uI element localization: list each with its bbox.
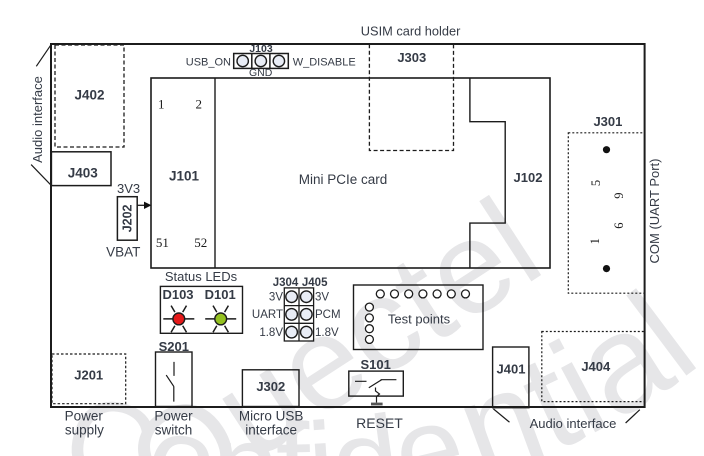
svg-text:J402: J402: [74, 88, 104, 103]
svg-text:3V: 3V: [269, 292, 283, 304]
svg-text:52: 52: [194, 235, 207, 250]
svg-text:COM (UART Port): COM (UART Port): [647, 159, 662, 264]
svg-text:Mini PCIe card: Mini PCIe card: [299, 172, 388, 187]
svg-text:D103: D103: [162, 287, 193, 302]
svg-text:J103: J103: [249, 43, 273, 55]
svg-text:RESET: RESET: [356, 415, 403, 431]
svg-text:interface: interface: [245, 423, 297, 438]
svg-text:J304: J304: [273, 277, 299, 289]
svg-text:J201: J201: [74, 368, 103, 383]
svg-text:2: 2: [195, 97, 202, 112]
svg-text:S101: S101: [361, 357, 391, 372]
svg-text:J102: J102: [514, 170, 543, 185]
svg-text:GND: GND: [249, 67, 273, 79]
svg-text:5: 5: [589, 180, 603, 186]
svg-text:USB_ON: USB_ON: [186, 57, 231, 69]
svg-text:VBAT: VBAT: [106, 245, 140, 260]
svg-text:1.8V: 1.8V: [315, 327, 339, 339]
svg-text:J404: J404: [581, 359, 611, 374]
svg-text:USIM card holder: USIM card holder: [361, 24, 461, 39]
svg-text:S201: S201: [159, 339, 189, 354]
svg-text:Power: Power: [65, 409, 104, 424]
svg-text:switch: switch: [155, 423, 193, 438]
svg-text:Micro USB: Micro USB: [239, 409, 304, 424]
svg-text:J301: J301: [593, 114, 622, 129]
svg-text:J101: J101: [169, 169, 200, 184]
svg-text:1: 1: [588, 238, 602, 244]
svg-text:1.8V: 1.8V: [259, 327, 283, 339]
svg-text:UART: UART: [252, 309, 283, 321]
svg-text:W_DISABLE: W_DISABLE: [293, 57, 356, 69]
svg-text:J303: J303: [397, 50, 426, 65]
svg-text:9: 9: [612, 192, 626, 198]
svg-text:Power: Power: [154, 409, 193, 424]
svg-text:Audio interface: Audio interface: [530, 416, 617, 431]
svg-text:D101: D101: [205, 287, 236, 302]
svg-text:3V: 3V: [315, 292, 329, 304]
svg-text:Status LEDs: Status LEDs: [165, 269, 238, 284]
svg-text:Audio interface: Audio interface: [30, 76, 45, 163]
svg-text:51: 51: [156, 235, 169, 250]
svg-text:Test points: Test points: [388, 312, 451, 327]
svg-text:3V3: 3V3: [117, 181, 140, 196]
svg-text:J405: J405: [302, 277, 328, 289]
svg-text:J401: J401: [497, 362, 526, 377]
svg-text:J302: J302: [256, 379, 285, 394]
svg-text:J403: J403: [68, 166, 99, 181]
svg-text:J202: J202: [121, 204, 135, 232]
svg-text:PCM: PCM: [315, 309, 341, 321]
svg-text:1: 1: [158, 97, 165, 112]
svg-text:6: 6: [612, 222, 626, 228]
svg-text:supply: supply: [65, 423, 104, 438]
